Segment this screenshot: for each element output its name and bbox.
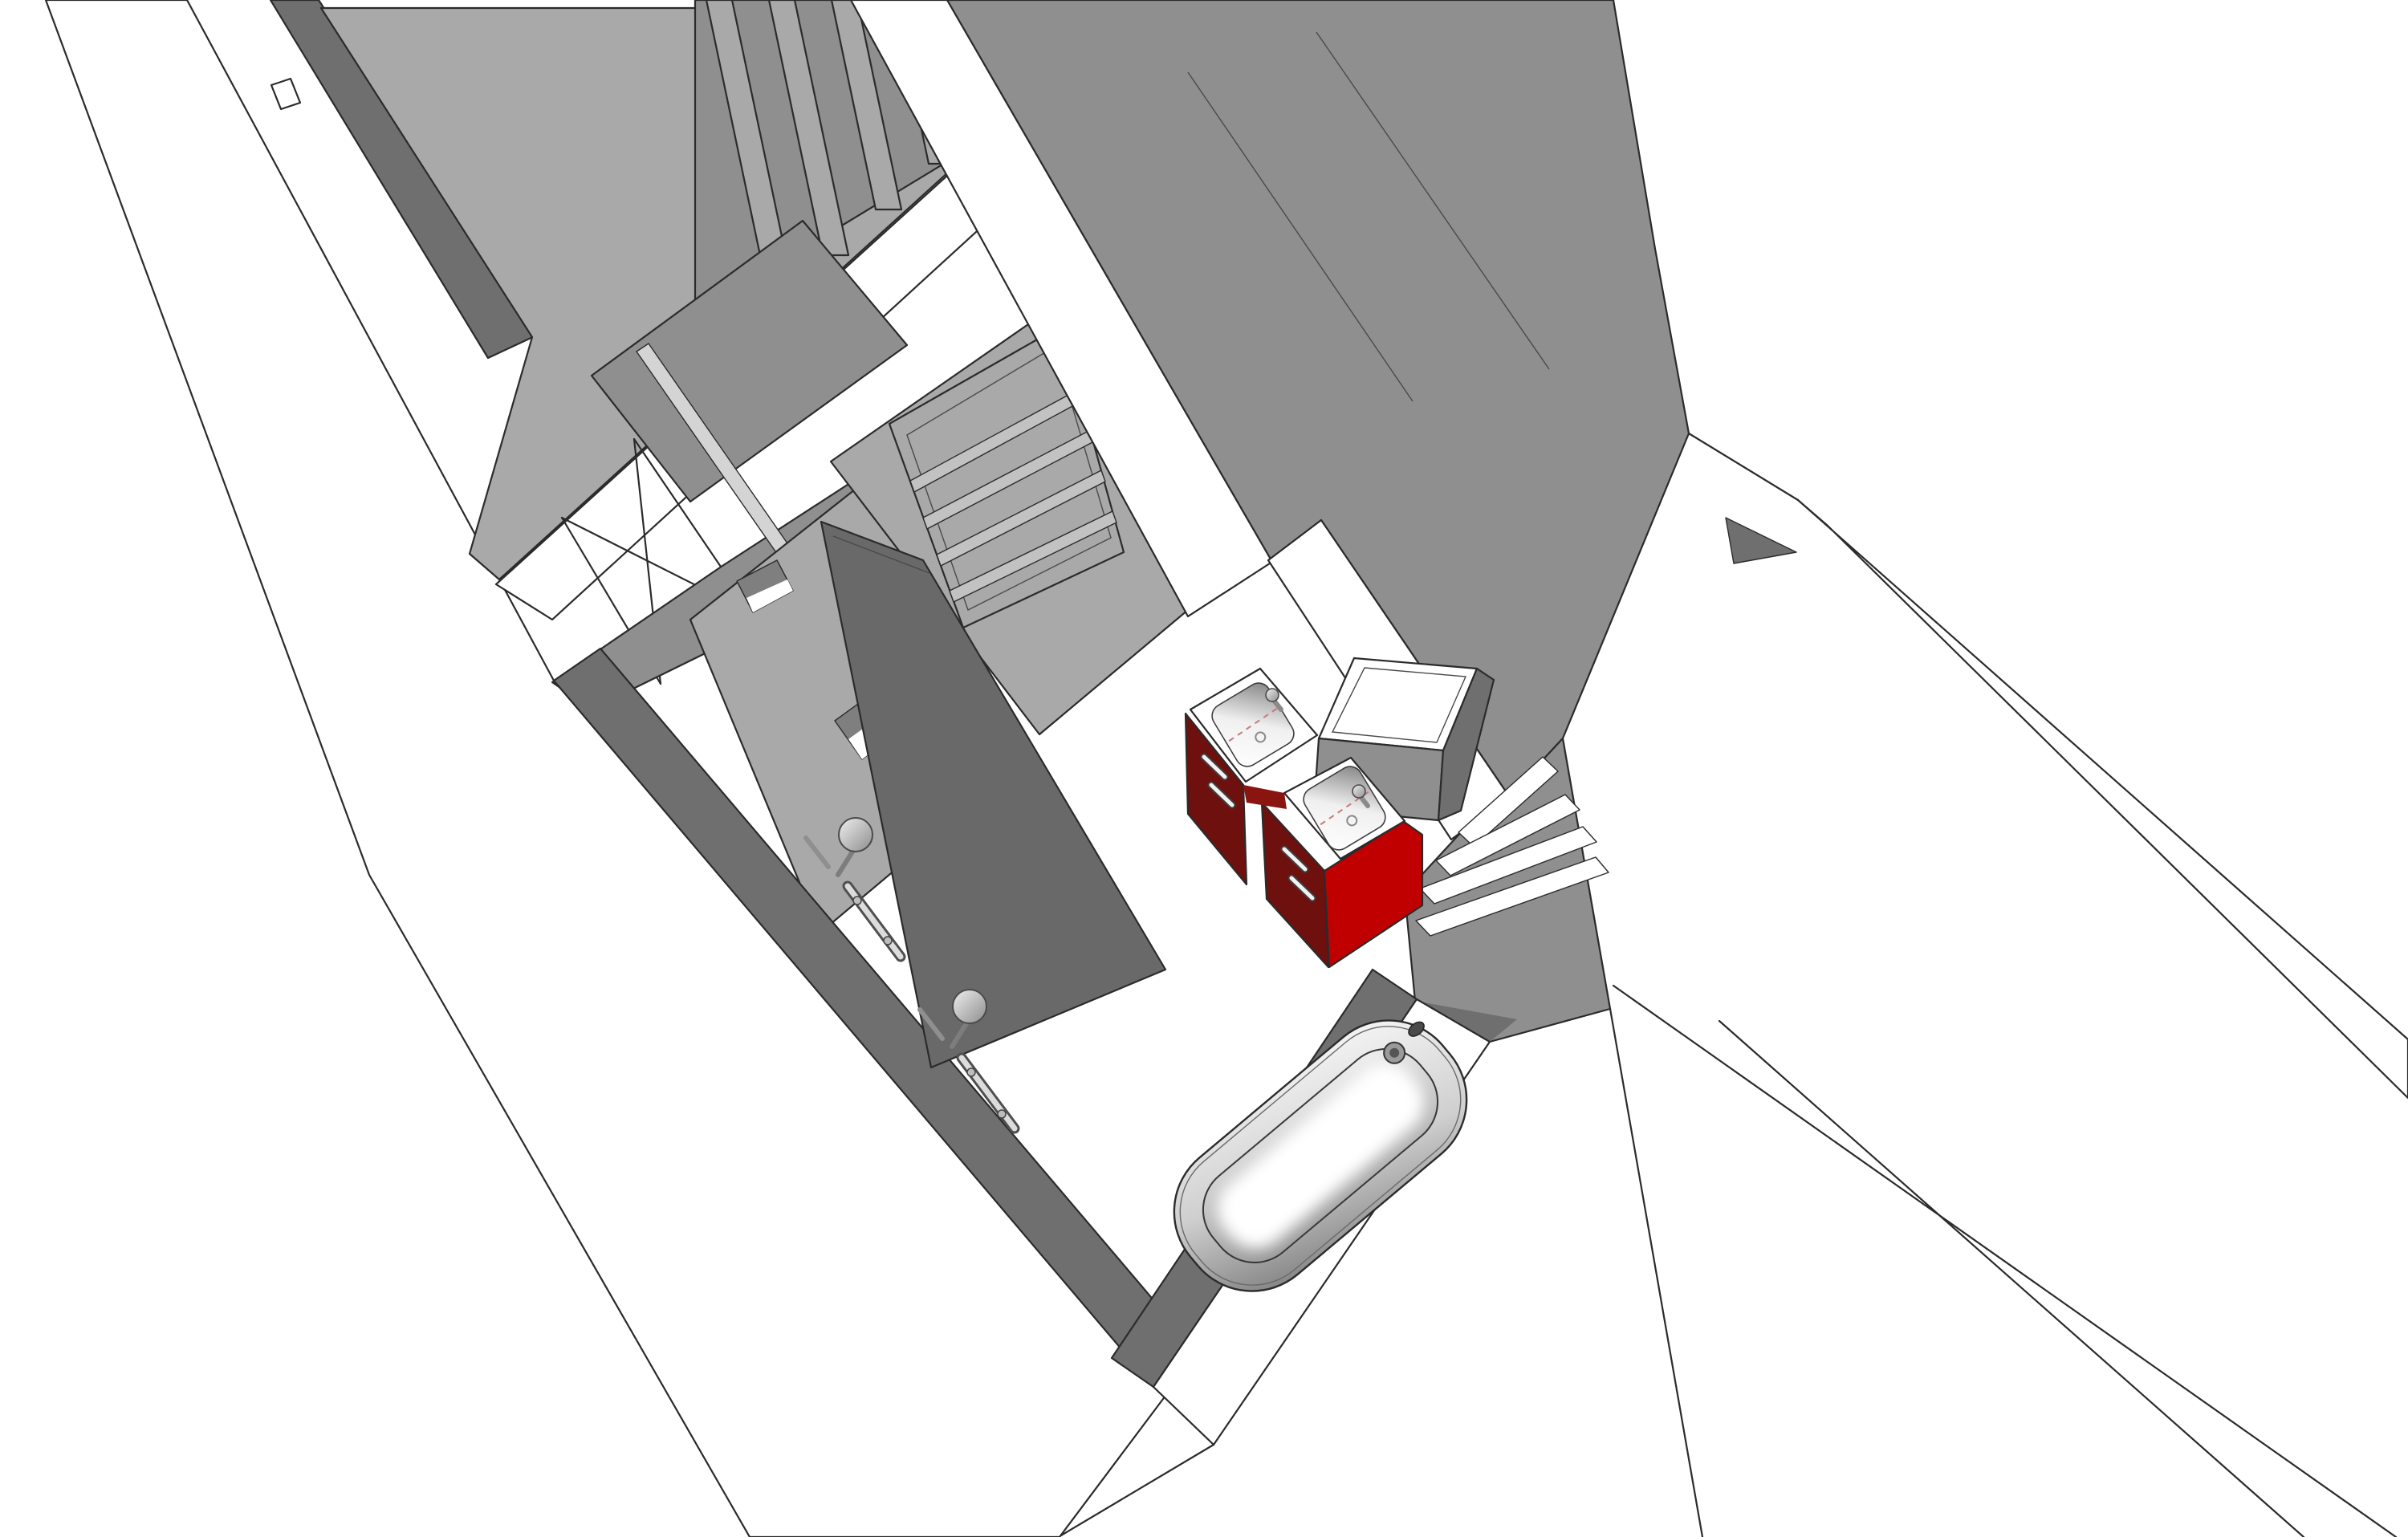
scene-canvas[interactable] [0,0,2408,1537]
shower-head-icon [953,990,986,1023]
shower-head-icon [839,818,872,852]
model-viewport[interactable] [0,0,2408,1537]
